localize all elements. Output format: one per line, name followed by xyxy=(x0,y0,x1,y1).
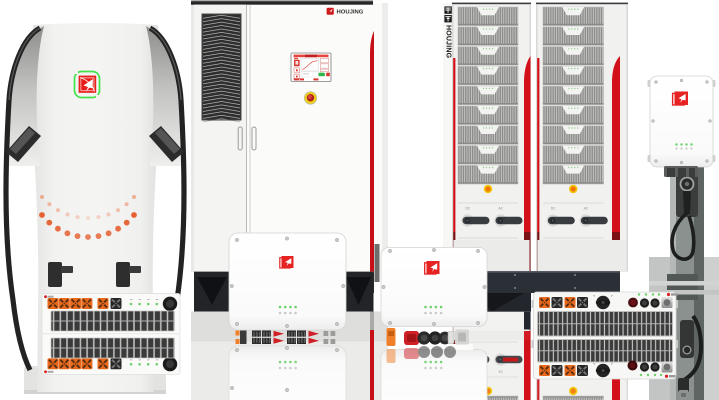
svg-text:HOUJING: HOUJING xyxy=(444,25,451,59)
svg-text:HOUJING: HOUJING xyxy=(337,9,364,15)
svg-text:DC: DC xyxy=(466,207,471,211)
svg-text:DC: DC xyxy=(551,207,556,211)
svg-text:AC: AC xyxy=(499,207,504,211)
svg-text:AC: AC xyxy=(584,207,589,211)
svg-text:AC: AC xyxy=(499,370,504,374)
